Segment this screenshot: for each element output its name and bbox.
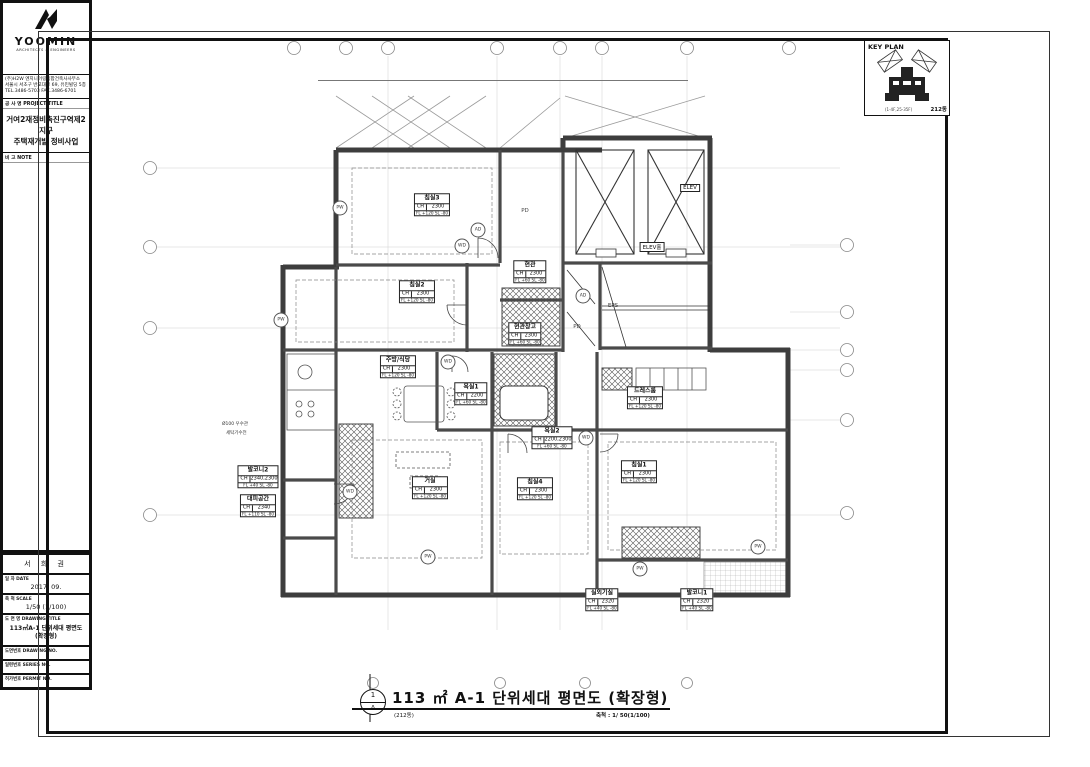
room-label-living: 거실CH2300FL +120 SL -80	[412, 476, 448, 499]
ch-value: 2300	[530, 488, 552, 494]
room-label-shelter: 대피공간CH2340FL +110 SL -80	[240, 494, 276, 517]
room-floor-level: FL +120 SL -80	[628, 404, 662, 409]
room-floor-level: FL +120 SL -80	[400, 298, 434, 303]
tag-ad: AD	[576, 289, 591, 304]
key-plan-building-label: 212동	[930, 105, 947, 113]
ch-value: 2300	[425, 487, 447, 493]
room-floor-level: FL +110 SL -80	[241, 512, 275, 517]
ch-label: CH	[509, 333, 521, 339]
drawing-caption: 113 ㎡ A-1 단위세대 평면도 (확장형)	[392, 687, 668, 708]
tag-ad: AD	[471, 223, 486, 238]
caption-scale: 축척 : 1/ 50(1/100)	[596, 711, 650, 719]
ch-label: CH	[628, 397, 640, 403]
tag-pw: PW	[421, 550, 436, 565]
ch-label: CH	[238, 476, 250, 482]
elevator-label: ELEV	[680, 184, 700, 192]
ch-value: 2300	[412, 291, 434, 297]
room-label-bedroom3: 침실3CH2300FL +120 SL -80	[414, 193, 450, 216]
sofa	[396, 452, 450, 468]
bathtub	[500, 386, 548, 420]
room-floor-level: FL +120 SL -80	[381, 373, 415, 378]
room-label-bedroom4: 침실4CH2300FL +120 SL -80	[517, 477, 553, 500]
caption-building: (212동)	[394, 711, 414, 719]
ch-value: 2340,2300	[250, 476, 277, 482]
ch-value: 2200	[467, 393, 486, 399]
room-floor-level: FL +40 SL -80	[586, 606, 617, 611]
room-label-balcony1: 발코니1CH2320FL +40 SL -80	[680, 588, 713, 611]
tag-wd: WD	[455, 239, 470, 254]
ch-label: CH	[518, 488, 530, 494]
room-label-kitchen: 주방/식당CH2300FL +120 SL -80	[380, 355, 416, 378]
tag-pw: PW	[751, 540, 766, 555]
room-label-bath2: 욕실2CH2200,2300FL +60 SL -80	[531, 426, 572, 449]
ch-value: 2300	[393, 366, 415, 372]
stairs-landing	[567, 267, 710, 347]
grid-lines	[156, 56, 840, 630]
room-label-dressroom: 드레스룸CH2300FL +120 SL -80	[627, 386, 663, 409]
pd-label: PD	[521, 208, 529, 214]
ch-value: 2300	[634, 471, 656, 477]
tag-pw: PW	[274, 313, 289, 328]
kitchen-sink	[298, 365, 312, 379]
ch-label: CH	[400, 291, 412, 297]
room-label-balcony2: 발코니2CH2340,2300FL +40 SL -80	[237, 465, 278, 488]
ch-label: CH	[381, 366, 393, 372]
ch-label: CH	[241, 505, 253, 511]
room-floor-level: FL +120 SL -80	[413, 494, 447, 499]
room-floor-level: FL +40 SL -80	[238, 483, 277, 488]
detail-number-bubble: 1 A	[360, 689, 386, 715]
dim-row-top-row	[318, 71, 688, 81]
key-plan-building-icon	[865, 41, 949, 115]
ch-value: 2300	[640, 397, 662, 403]
ch-label: CH	[415, 204, 427, 210]
room-floor-level: FL +60 SL -80	[514, 278, 545, 283]
tag-wd: WD	[579, 431, 594, 446]
ch-value: 2320	[693, 599, 712, 605]
room-floor-level: FL +120 SL -80	[415, 211, 449, 216]
tag-wd: WD	[343, 485, 358, 500]
room-floor-level: FL +60 SL -80	[455, 400, 486, 405]
ch-value: 2300	[427, 204, 449, 210]
room-label-acroom: 실외기실CH2320FL +40 SL -80	[585, 588, 618, 611]
room-label-entry-storage: 현관창고CH2300FL +60 SL -80	[508, 322, 541, 345]
ch-value: 2340	[253, 505, 275, 511]
ch-label: CH	[413, 487, 425, 493]
ch-label: CH	[681, 599, 693, 605]
ch-label: CH	[532, 437, 544, 443]
ch-label: CH	[455, 393, 467, 399]
elevator-shaft	[576, 150, 704, 257]
ch-label: CH	[514, 271, 526, 277]
room-label-bedroom2: 침실2CH2300FL +120 SL -80	[399, 280, 435, 303]
ch-value: 2300	[521, 333, 540, 339]
tag-pw: PW	[333, 201, 348, 216]
elevator-hall-label: ELEV홀	[640, 242, 665, 252]
tag-wd: WD	[441, 355, 456, 370]
caption-underline	[352, 708, 670, 710]
key-plan-title: KEY PLAN	[868, 43, 904, 51]
ch-label: CH	[586, 599, 598, 605]
room-label-bedroom1: 침실1CH2300FL +120 SL -80	[621, 460, 657, 483]
ch-value: 2320	[598, 599, 617, 605]
pd-label: PD	[573, 324, 581, 330]
room-floor-level: FL +40 SL -80	[681, 606, 712, 611]
room-floor-level: FL +60 SL -80	[532, 444, 571, 449]
drawing-sheet: 침실3CH2300FL +120 SL -80침실2CH2300FL +120 …	[0, 0, 1090, 767]
room-label-entry: 현관CH2300FL +60 SL -80	[513, 260, 546, 283]
annotation: Ø100 우수관	[222, 421, 248, 427]
tag-pw: PW	[633, 562, 648, 577]
ch-value: 2200,2300	[544, 437, 571, 443]
room-label-bath1: 욕실1CH2200FL +60 SL -80	[454, 382, 487, 405]
annotation: 세탁기수전	[226, 430, 247, 436]
room-floor-level: FL +120 SL -80	[622, 478, 656, 483]
eps-label: EPS	[608, 303, 618, 309]
door-swings	[334, 238, 618, 504]
ch-value: 2300	[526, 271, 545, 277]
kitchen-counter	[287, 354, 335, 430]
room-floor-level: FL +120 SL -80	[518, 495, 552, 500]
room-floor-level: FL +60 SL -80	[509, 340, 540, 345]
key-plan-floors: (1-4F,25-35F)	[885, 107, 912, 112]
key-plan: KEY PLAN (1-4F,25-35F) 212동	[864, 40, 950, 116]
ch-label: CH	[622, 471, 634, 477]
